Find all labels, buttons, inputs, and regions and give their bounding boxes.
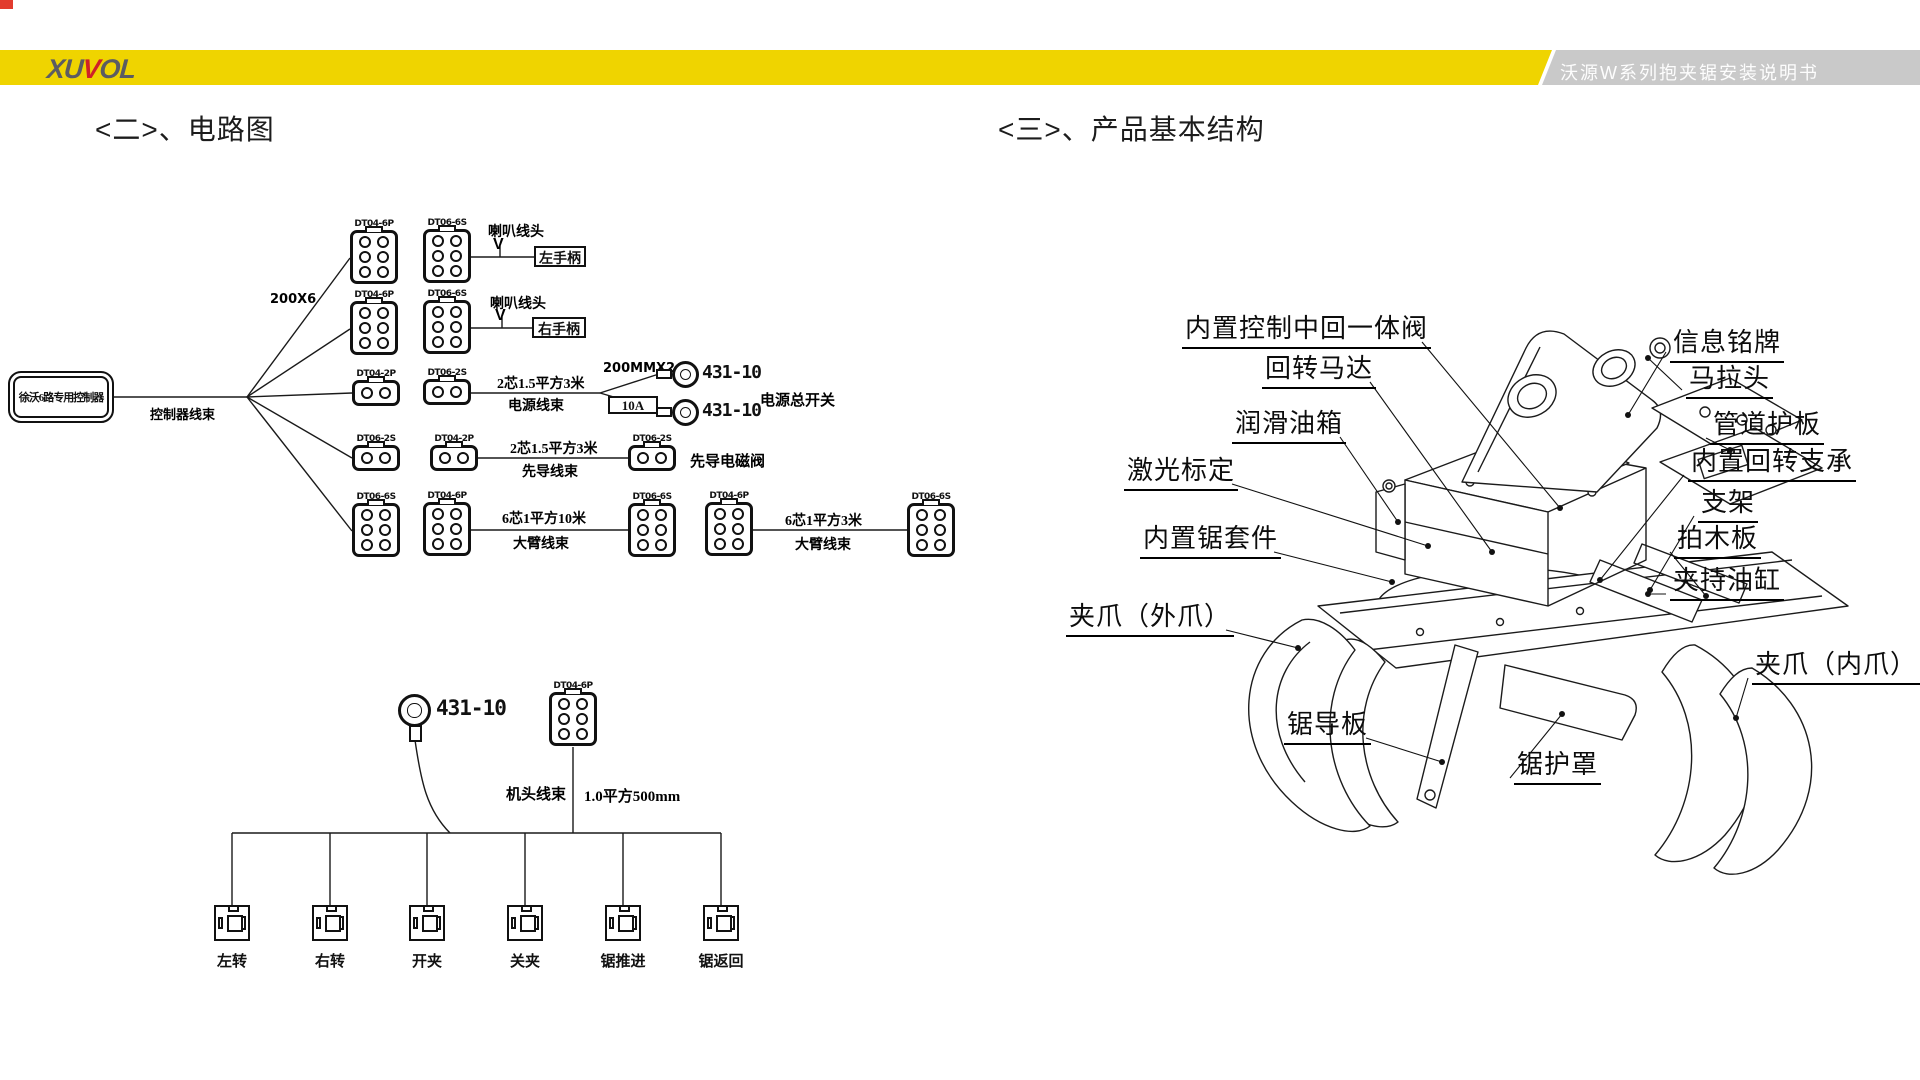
connector-tab xyxy=(564,688,582,694)
connector: DT04-2P xyxy=(352,369,400,406)
wire-label: 大臂线束 xyxy=(513,533,569,553)
connector-tab xyxy=(922,499,940,505)
fanout-label: 200X6 xyxy=(270,292,316,307)
splice-mark: V xyxy=(495,307,506,325)
wire-label: 6芯1平方10米 xyxy=(502,508,586,528)
connector-body xyxy=(907,503,955,557)
logo-ol: OL xyxy=(99,54,137,84)
wire-label: 2芯1.5平方3米 xyxy=(497,373,585,393)
connector-tab xyxy=(438,225,456,231)
connector-body xyxy=(628,445,676,471)
part-label-pull-head: 马拉头 xyxy=(1686,358,1773,399)
wire-spec-label: 1.0平方500mm xyxy=(584,785,680,806)
structure-drawing xyxy=(0,0,1920,1080)
connector-tab xyxy=(438,498,456,504)
switch xyxy=(605,905,641,941)
document-title: 沃源W系列抱夹锯安装说明书 xyxy=(1560,59,1819,85)
part-label-rotary-motor: 回转马达 xyxy=(1262,348,1376,389)
connector-tab xyxy=(365,297,383,303)
switch xyxy=(703,905,739,941)
connector-tab xyxy=(367,499,385,505)
connector-tab xyxy=(367,376,385,382)
connector: DT06-2S xyxy=(628,434,676,471)
connector-body xyxy=(352,380,400,406)
fuse-box: 10A xyxy=(608,396,658,414)
part-label-valve: 内置控制中回一体阀 xyxy=(1182,308,1431,349)
connector: DT06-2S xyxy=(423,368,471,405)
connector-body xyxy=(423,379,471,405)
connector: DT06-6S xyxy=(352,492,400,557)
connector-body xyxy=(352,503,400,557)
terminal-stub xyxy=(409,725,422,742)
terminal-label: 431-10 xyxy=(702,400,761,421)
switch-label: 关夹 xyxy=(480,950,570,971)
connector-body xyxy=(423,300,471,354)
connector-body xyxy=(628,503,676,557)
connector-body xyxy=(705,502,753,556)
wire-label: 大臂线束 xyxy=(795,534,851,554)
controller-harness-label: 控制器线束 xyxy=(150,404,215,423)
connector-tab xyxy=(438,375,456,381)
part-label-inner-claw: 夹爪（内爪） xyxy=(1752,644,1920,685)
xuvol-logo: XUVOL xyxy=(46,54,136,85)
part-label-clamp-cylinder: 夹持油缸 xyxy=(1670,560,1784,601)
wire-label: 电源线束 xyxy=(508,395,564,415)
part-label-laser-calibration: 激光标定 xyxy=(1124,450,1238,491)
connector: DT06-6S xyxy=(907,492,955,557)
connector: DT06-2S xyxy=(352,434,400,471)
switch xyxy=(409,905,445,941)
connector: DT06-6S xyxy=(628,492,676,557)
switch xyxy=(312,905,348,941)
target-box: 右手柄 xyxy=(532,317,586,338)
switch-label: 锯返回 xyxy=(676,950,766,971)
splice-mark: V xyxy=(493,236,504,254)
connector: DT04-6P xyxy=(350,219,398,284)
switch xyxy=(507,905,543,941)
connector-tab xyxy=(438,296,456,302)
connector-body xyxy=(423,502,471,556)
connector-body xyxy=(350,230,398,284)
part-label-pipe-guard: 管道护板 xyxy=(1710,404,1824,445)
switch xyxy=(214,905,250,941)
power-switch-label: 电源总开关 xyxy=(760,389,835,410)
logo-xu: XU xyxy=(46,54,84,84)
head-harness-label: 机头线束 xyxy=(506,783,566,804)
wire-label: 6芯1平方3米 xyxy=(785,510,862,530)
wire-label: 先导线束 xyxy=(522,461,578,481)
corner-mark xyxy=(0,0,13,9)
connector-body xyxy=(430,445,478,471)
controller-label: 徐沃6路专用控制器 xyxy=(13,376,109,418)
structure-section-title: <三>、产品基本结构 xyxy=(998,108,1265,148)
part-label-lube-tank: 润滑油箱 xyxy=(1232,403,1346,444)
controller-box: 徐沃6路专用控制器 xyxy=(8,371,114,423)
ring-terminal xyxy=(672,399,699,426)
connector-body xyxy=(352,445,400,471)
connector: DT04-2P xyxy=(430,434,478,471)
terminal-stub xyxy=(656,407,672,417)
logo-v: V xyxy=(82,54,101,84)
ring-terminal xyxy=(398,694,431,727)
part-label-saw-guide: 锯导板 xyxy=(1284,704,1371,745)
part-label-wood-plate: 拍木板 xyxy=(1674,518,1761,559)
connector-body xyxy=(423,229,471,283)
part-label-saw-kit: 内置锯套件 xyxy=(1140,518,1281,559)
connector: DT04-6P xyxy=(423,491,471,556)
switch-label: 右转 xyxy=(285,950,375,971)
connector: DT04-6P xyxy=(705,491,753,556)
part-label-outer-claw: 夹爪（外爪） xyxy=(1066,596,1234,637)
connector-body xyxy=(549,692,597,746)
manual-page: { "colors":{"yellow":"#efd400","gray_ban… xyxy=(0,0,1920,1080)
terminal-stub xyxy=(656,369,672,379)
switch-label: 锯推进 xyxy=(578,950,668,971)
part-label-saw-cover: 锯护罩 xyxy=(1514,744,1601,785)
connector-tab xyxy=(720,498,738,504)
switch-label: 开夹 xyxy=(382,950,472,971)
connector-tab xyxy=(365,226,383,232)
connector: DT06-6S xyxy=(423,289,471,354)
connector: DT04-6P xyxy=(549,681,597,746)
ring-terminal xyxy=(672,361,699,388)
part-label-slewing-bearing: 内置回转支承 xyxy=(1688,441,1856,482)
switch-label: 左转 xyxy=(187,950,277,971)
connector-tab xyxy=(643,441,661,447)
connector-body xyxy=(350,301,398,355)
connector: DT04-6P xyxy=(350,290,398,355)
part-label-bracket: 支架 xyxy=(1698,482,1758,523)
part-label-nameplate: 信息铭牌 xyxy=(1670,322,1784,363)
target-box: 左手柄 xyxy=(534,246,586,267)
terminal-label: 431-10 xyxy=(702,362,761,383)
connector-tab xyxy=(367,441,385,447)
wire-label: 2芯1.5平方3米 xyxy=(510,438,598,458)
pilot-valve-label: 先导电磁阀 xyxy=(690,450,765,471)
connector: DT06-6S xyxy=(423,218,471,283)
terminal-label: 431-10 xyxy=(436,696,506,720)
connector-tab xyxy=(643,499,661,505)
connector-tab xyxy=(445,441,463,447)
circuit-section-title: <二>、电路图 xyxy=(95,108,275,148)
